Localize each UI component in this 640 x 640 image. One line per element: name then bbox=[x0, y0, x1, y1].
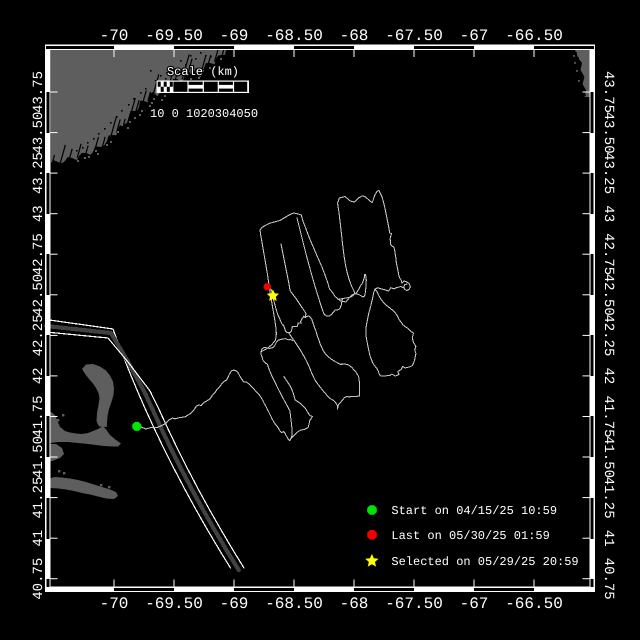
svg-text:-67.50: -67.50 bbox=[385, 595, 443, 613]
svg-text:40.75: 40.75 bbox=[600, 558, 616, 600]
svg-text:42: 42 bbox=[600, 367, 616, 384]
svg-text:-66.50: -66.50 bbox=[505, 27, 563, 45]
svg-text:43: 43 bbox=[600, 205, 616, 222]
svg-text:-67: -67 bbox=[460, 595, 489, 613]
svg-text:42.25: 42.25 bbox=[600, 314, 616, 356]
svg-text:43.25: 43.25 bbox=[600, 152, 616, 194]
svg-text:43: 43 bbox=[31, 205, 47, 222]
svg-text:-69: -69 bbox=[220, 595, 249, 613]
svg-text:Scale (km): Scale (km) bbox=[167, 65, 239, 79]
svg-text:42.25: 42.25 bbox=[31, 314, 47, 356]
svg-text:43.75: 43.75 bbox=[31, 71, 47, 113]
svg-text:-70: -70 bbox=[100, 27, 129, 45]
svg-text:41.25: 41.25 bbox=[600, 477, 616, 519]
svg-text:43.50: 43.50 bbox=[31, 112, 47, 154]
svg-text:42: 42 bbox=[31, 367, 47, 384]
svg-text:-69.50: -69.50 bbox=[145, 27, 203, 45]
svg-text:42.50: 42.50 bbox=[600, 274, 616, 316]
svg-text:-68.50: -68.50 bbox=[265, 595, 323, 613]
svg-text:41.50: 41.50 bbox=[31, 436, 47, 478]
svg-text:42.75: 42.75 bbox=[31, 233, 47, 275]
svg-text:-69: -69 bbox=[220, 27, 249, 45]
svg-text:-67: -67 bbox=[460, 27, 489, 45]
svg-text:41.50: 41.50 bbox=[600, 436, 616, 478]
svg-text:-68: -68 bbox=[340, 595, 369, 613]
svg-text:-66.50: -66.50 bbox=[505, 595, 563, 613]
svg-text:-68.50: -68.50 bbox=[265, 27, 323, 45]
svg-text:42.50: 42.50 bbox=[31, 274, 47, 316]
svg-text:41.75: 41.75 bbox=[31, 395, 47, 437]
svg-text:-70: -70 bbox=[100, 595, 129, 613]
svg-text:43.25: 43.25 bbox=[31, 152, 47, 194]
svg-text:41: 41 bbox=[31, 530, 47, 547]
svg-text:-67.50: -67.50 bbox=[385, 27, 443, 45]
svg-text:41.75: 41.75 bbox=[600, 395, 616, 437]
svg-text:43.75: 43.75 bbox=[600, 71, 616, 113]
svg-text:43.50: 43.50 bbox=[600, 112, 616, 154]
svg-text:40.75: 40.75 bbox=[31, 558, 47, 600]
svg-text:-69.50: -69.50 bbox=[145, 595, 203, 613]
svg-text:10 0 1020304050: 10 0 1020304050 bbox=[150, 107, 258, 121]
svg-text:Start on 04/15/25 10:59: Start on 04/15/25 10:59 bbox=[391, 504, 557, 518]
svg-text:41.25: 41.25 bbox=[31, 477, 47, 519]
svg-text:Last on 05/30/25 01:59: Last on 05/30/25 01:59 bbox=[391, 529, 549, 543]
svg-text:41: 41 bbox=[600, 530, 616, 547]
svg-text:Selected on 05/29/25 20:59: Selected on 05/29/25 20:59 bbox=[391, 555, 578, 569]
svg-text:-68: -68 bbox=[340, 27, 369, 45]
svg-text:42.75: 42.75 bbox=[600, 233, 616, 275]
